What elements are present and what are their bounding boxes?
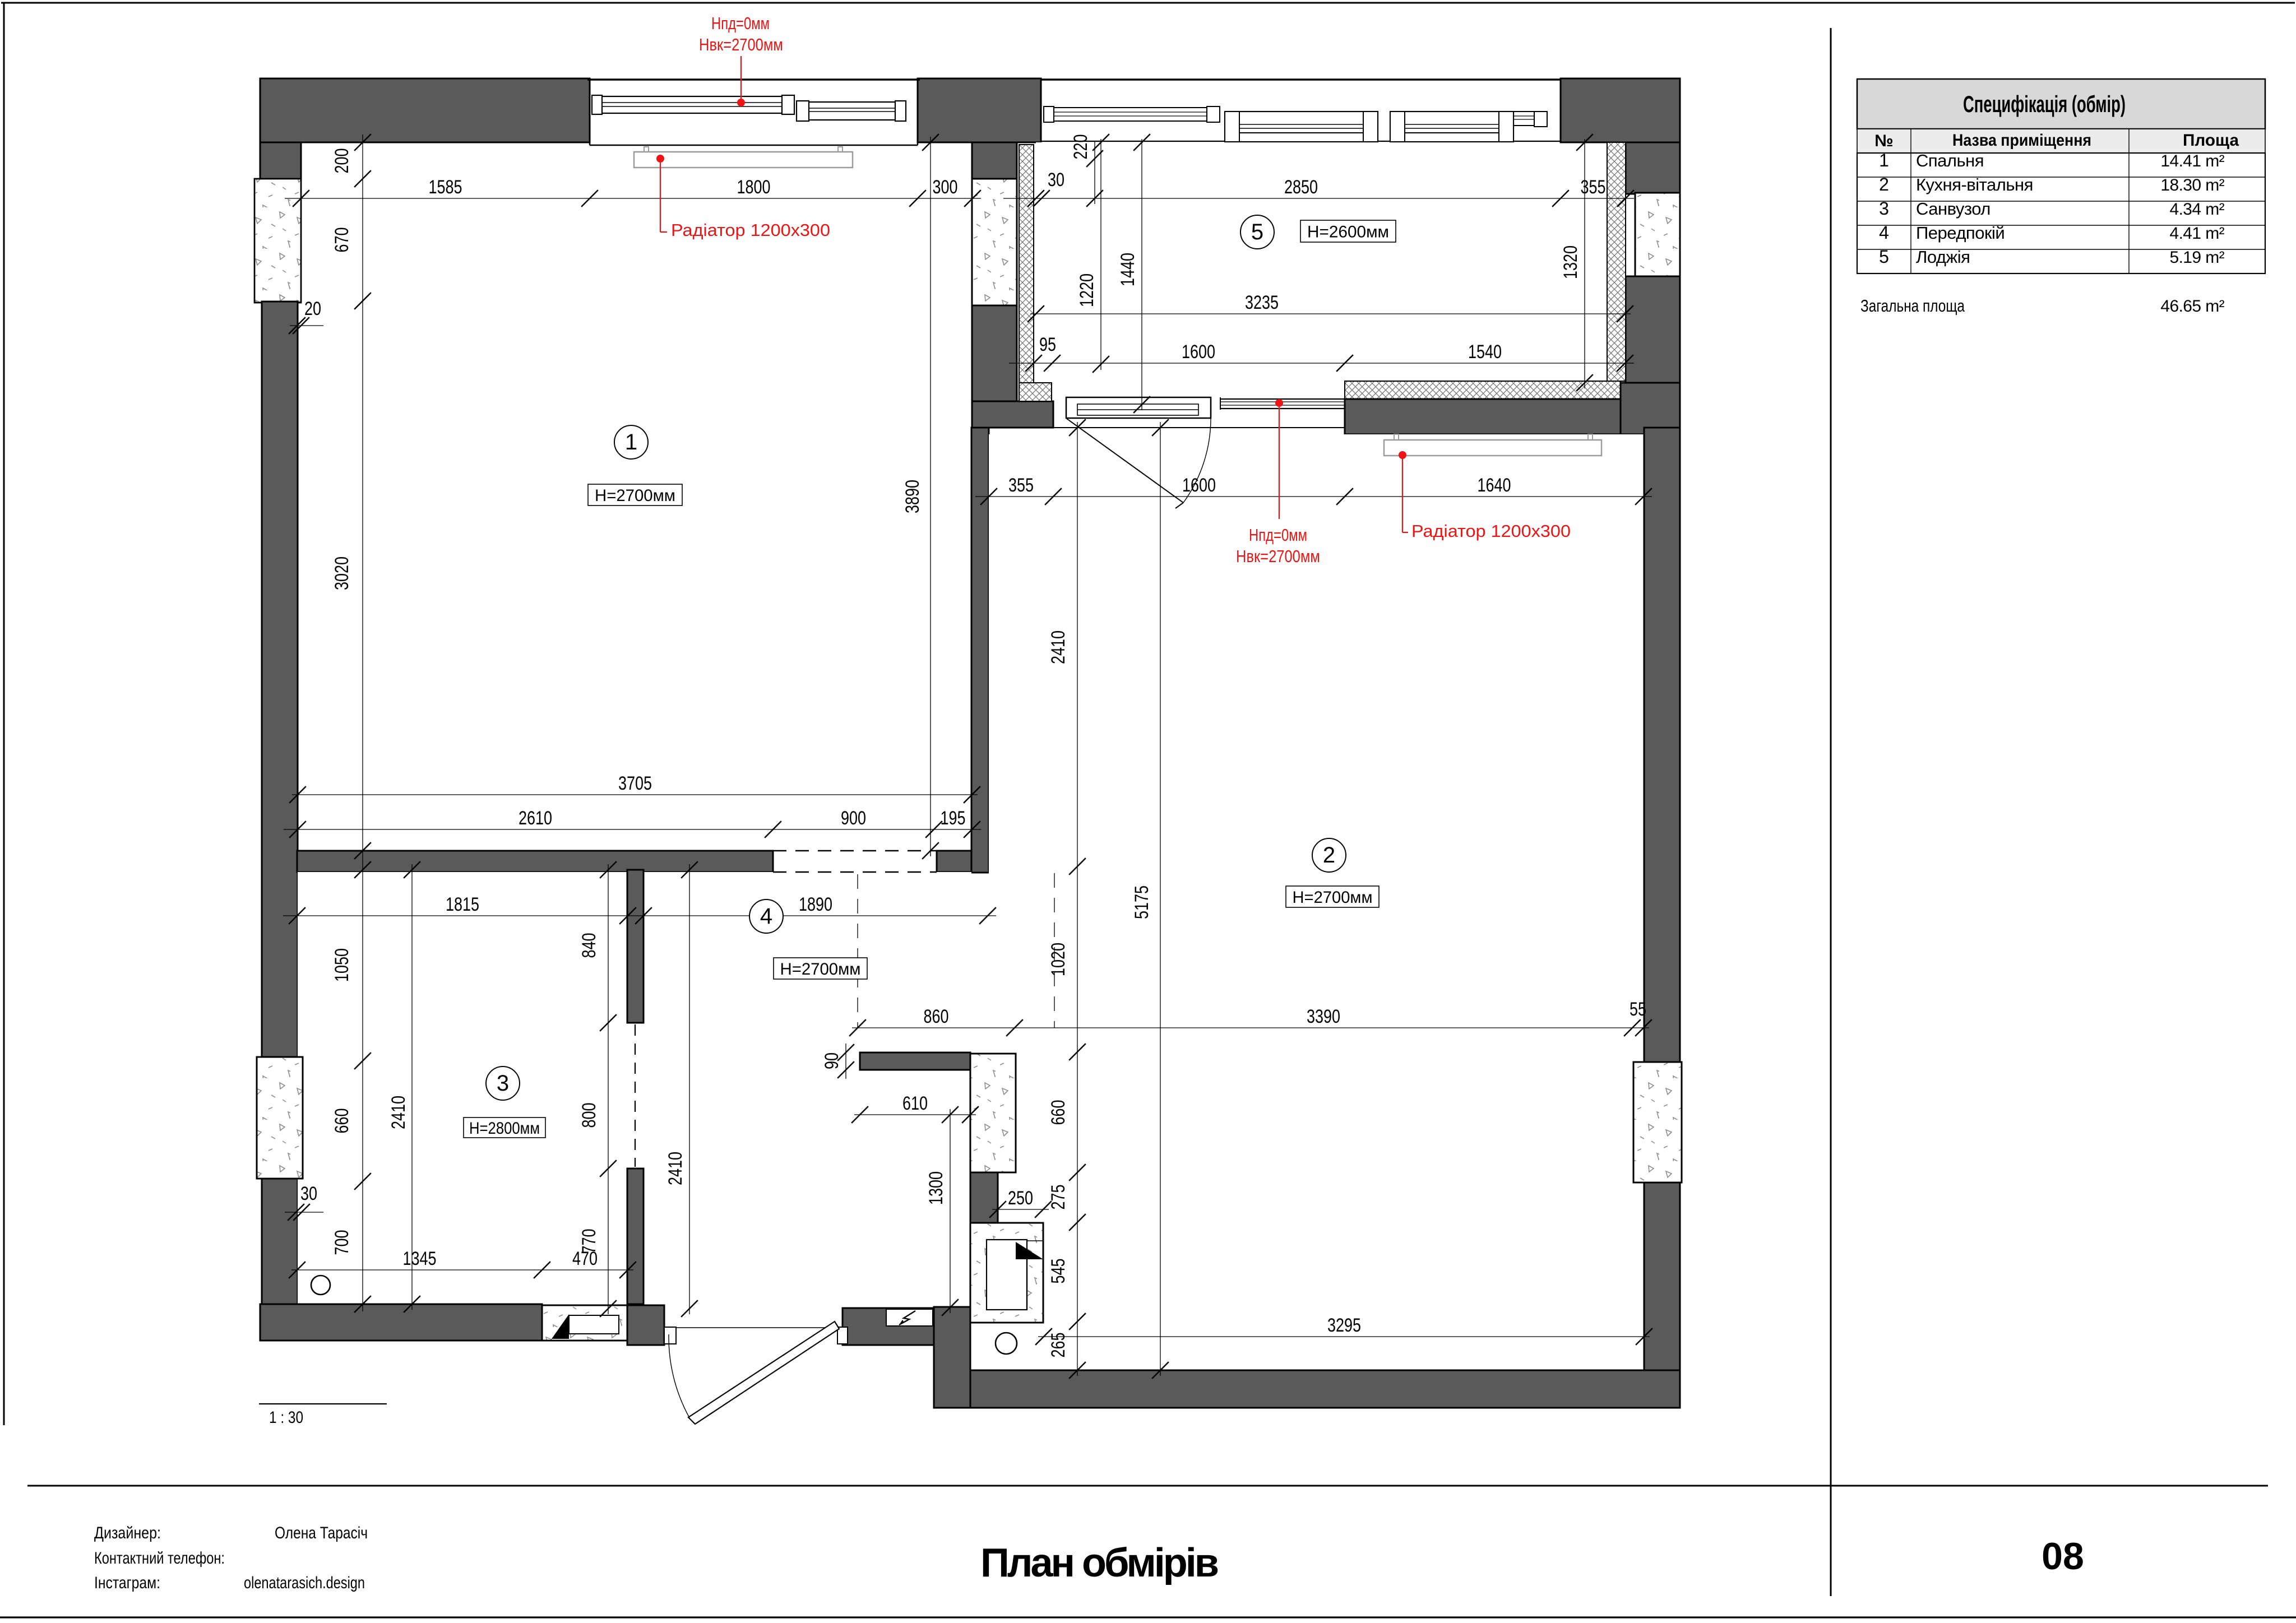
- svg-text:5: 5: [1879, 247, 1889, 267]
- svg-text:2410: 2410: [665, 1152, 686, 1185]
- svg-text:1220: 1220: [1076, 273, 1098, 307]
- svg-text:14.41 m²: 14.41 m²: [2160, 152, 2224, 170]
- svg-text:700: 700: [331, 1230, 353, 1255]
- svg-text:800: 800: [578, 1103, 600, 1128]
- svg-text:1345: 1345: [403, 1248, 437, 1269]
- svg-text:1300: 1300: [925, 1171, 947, 1205]
- svg-text:610: 610: [902, 1093, 928, 1114]
- svg-text:3890: 3890: [902, 480, 923, 513]
- svg-text:355: 355: [1581, 177, 1606, 198]
- svg-text:770: 770: [578, 1229, 600, 1254]
- svg-text:2: 2: [1879, 174, 1889, 194]
- svg-text:1 : 30: 1 : 30: [269, 1408, 303, 1427]
- svg-text:1815: 1815: [446, 894, 479, 915]
- svg-text:90: 90: [821, 1052, 843, 1069]
- svg-text:Дизайнер:: Дизайнер:: [94, 1524, 161, 1542]
- svg-text:1020: 1020: [1048, 943, 1069, 976]
- svg-text:2: 2: [1323, 843, 1335, 868]
- svg-text:1050: 1050: [331, 948, 353, 982]
- svg-text:Нпд=0мм: Нпд=0мм: [1249, 525, 1307, 545]
- svg-text:H=2700мм: H=2700мм: [595, 486, 675, 505]
- svg-text:1800: 1800: [737, 177, 771, 198]
- svg-text:Нпд=0мм: Нпд=0мм: [711, 13, 770, 33]
- svg-text:Радіатор 1200x300: Радіатор 1200x300: [1411, 521, 1571, 541]
- svg-text:30: 30: [300, 1183, 317, 1204]
- svg-text:3235: 3235: [1245, 292, 1279, 313]
- svg-text:1890: 1890: [799, 894, 832, 915]
- svg-text:18.30 m²: 18.30 m²: [2160, 176, 2224, 194]
- svg-text:1585: 1585: [429, 177, 462, 198]
- svg-text:265: 265: [1048, 1333, 1069, 1358]
- svg-text:№: №: [1874, 132, 1893, 150]
- svg-text:1320: 1320: [1560, 245, 1581, 279]
- svg-text:2610: 2610: [519, 808, 552, 829]
- svg-text:860: 860: [924, 1006, 949, 1027]
- svg-text:Передпокій: Передпокій: [1916, 223, 2005, 243]
- svg-text:Спальня: Спальня: [1916, 151, 1984, 170]
- svg-text:4.41 m²: 4.41 m²: [2169, 224, 2224, 243]
- svg-text:3295: 3295: [1327, 1315, 1361, 1336]
- svg-text:3: 3: [1879, 198, 1889, 219]
- svg-text:4: 4: [760, 904, 772, 929]
- svg-text:1600: 1600: [1182, 341, 1215, 363]
- svg-text:08: 08: [2042, 1535, 2084, 1578]
- svg-text:H=2700мм: H=2700мм: [1293, 888, 1373, 907]
- svg-text:30: 30: [1048, 169, 1064, 191]
- svg-text:H=2600мм: H=2600мм: [1307, 223, 1389, 242]
- svg-text:55: 55: [1630, 999, 1646, 1020]
- svg-text:Площа: Площа: [2183, 131, 2239, 150]
- svg-text:Радіатор 1200x300: Радіатор 1200x300: [671, 220, 830, 240]
- svg-text:Нвк=2700мм: Нвк=2700мм: [699, 35, 783, 54]
- svg-text:195: 195: [941, 808, 966, 829]
- svg-text:300: 300: [933, 177, 958, 198]
- svg-text:Специфікація (обмір): Специфікація (обмір): [1963, 91, 2126, 117]
- svg-text:660: 660: [331, 1109, 353, 1134]
- svg-text:46.65 m²: 46.65 m²: [2160, 297, 2224, 316]
- svg-text:План обмірів: План обмірів: [980, 1541, 1218, 1585]
- svg-text:1640: 1640: [1478, 475, 1511, 496]
- svg-text:355: 355: [1008, 475, 1034, 496]
- svg-text:1540: 1540: [1468, 341, 1502, 363]
- svg-text:Загальна площа: Загальна площа: [1860, 296, 1965, 316]
- svg-text:Санвузол: Санвузол: [1916, 199, 1991, 219]
- svg-text:4: 4: [1879, 222, 1889, 243]
- svg-text:1: 1: [1879, 150, 1889, 170]
- svg-text:4.34 m²: 4.34 m²: [2169, 200, 2224, 219]
- svg-text:1440: 1440: [1117, 253, 1138, 286]
- svg-text:Нвк=2700мм: Нвк=2700мм: [1236, 546, 1320, 566]
- svg-text:220: 220: [1070, 135, 1091, 160]
- svg-text:545: 545: [1048, 1259, 1069, 1284]
- svg-text:2410: 2410: [1048, 630, 1069, 664]
- svg-text:250: 250: [1008, 1188, 1033, 1209]
- svg-text:3705: 3705: [618, 773, 652, 794]
- svg-text:Лоджія: Лоджія: [1916, 247, 1970, 267]
- svg-text:900: 900: [841, 808, 866, 829]
- svg-text:660: 660: [1048, 1100, 1069, 1125]
- svg-text:3390: 3390: [1307, 1006, 1340, 1027]
- svg-text:Назва приміщення: Назва приміщення: [1952, 131, 2091, 150]
- svg-text:5175: 5175: [1131, 885, 1152, 919]
- svg-text:3: 3: [497, 1071, 509, 1096]
- svg-text:5: 5: [1251, 220, 1263, 244]
- svg-text:H=2800мм: H=2800мм: [469, 1119, 540, 1138]
- svg-text:Контактний телефон:: Контактний телефон:: [94, 1549, 225, 1568]
- svg-text:H=2700мм: H=2700мм: [780, 960, 861, 979]
- svg-text:Олена Тарасіч: Олена Тарасіч: [275, 1524, 368, 1542]
- svg-text:95: 95: [1039, 334, 1056, 355]
- svg-text:275: 275: [1048, 1185, 1069, 1210]
- svg-text:3020: 3020: [331, 557, 353, 590]
- svg-text:1600: 1600: [1182, 475, 1216, 496]
- svg-text:2850: 2850: [1284, 177, 1318, 198]
- svg-text:Кухня-вітальня: Кухня-вітальня: [1916, 175, 2033, 194]
- svg-text:20: 20: [304, 298, 321, 319]
- svg-text:Інстаграм:: Інстаграм:: [94, 1574, 160, 1592]
- svg-text:200: 200: [331, 149, 353, 174]
- svg-text:5.19 m²: 5.19 m²: [2169, 248, 2224, 267]
- svg-text:1: 1: [625, 430, 637, 455]
- svg-text:olenatarasich.design: olenatarasich.design: [244, 1574, 365, 1592]
- svg-text:670: 670: [331, 228, 353, 253]
- svg-text:2410: 2410: [388, 1096, 409, 1129]
- svg-text:840: 840: [578, 933, 600, 958]
